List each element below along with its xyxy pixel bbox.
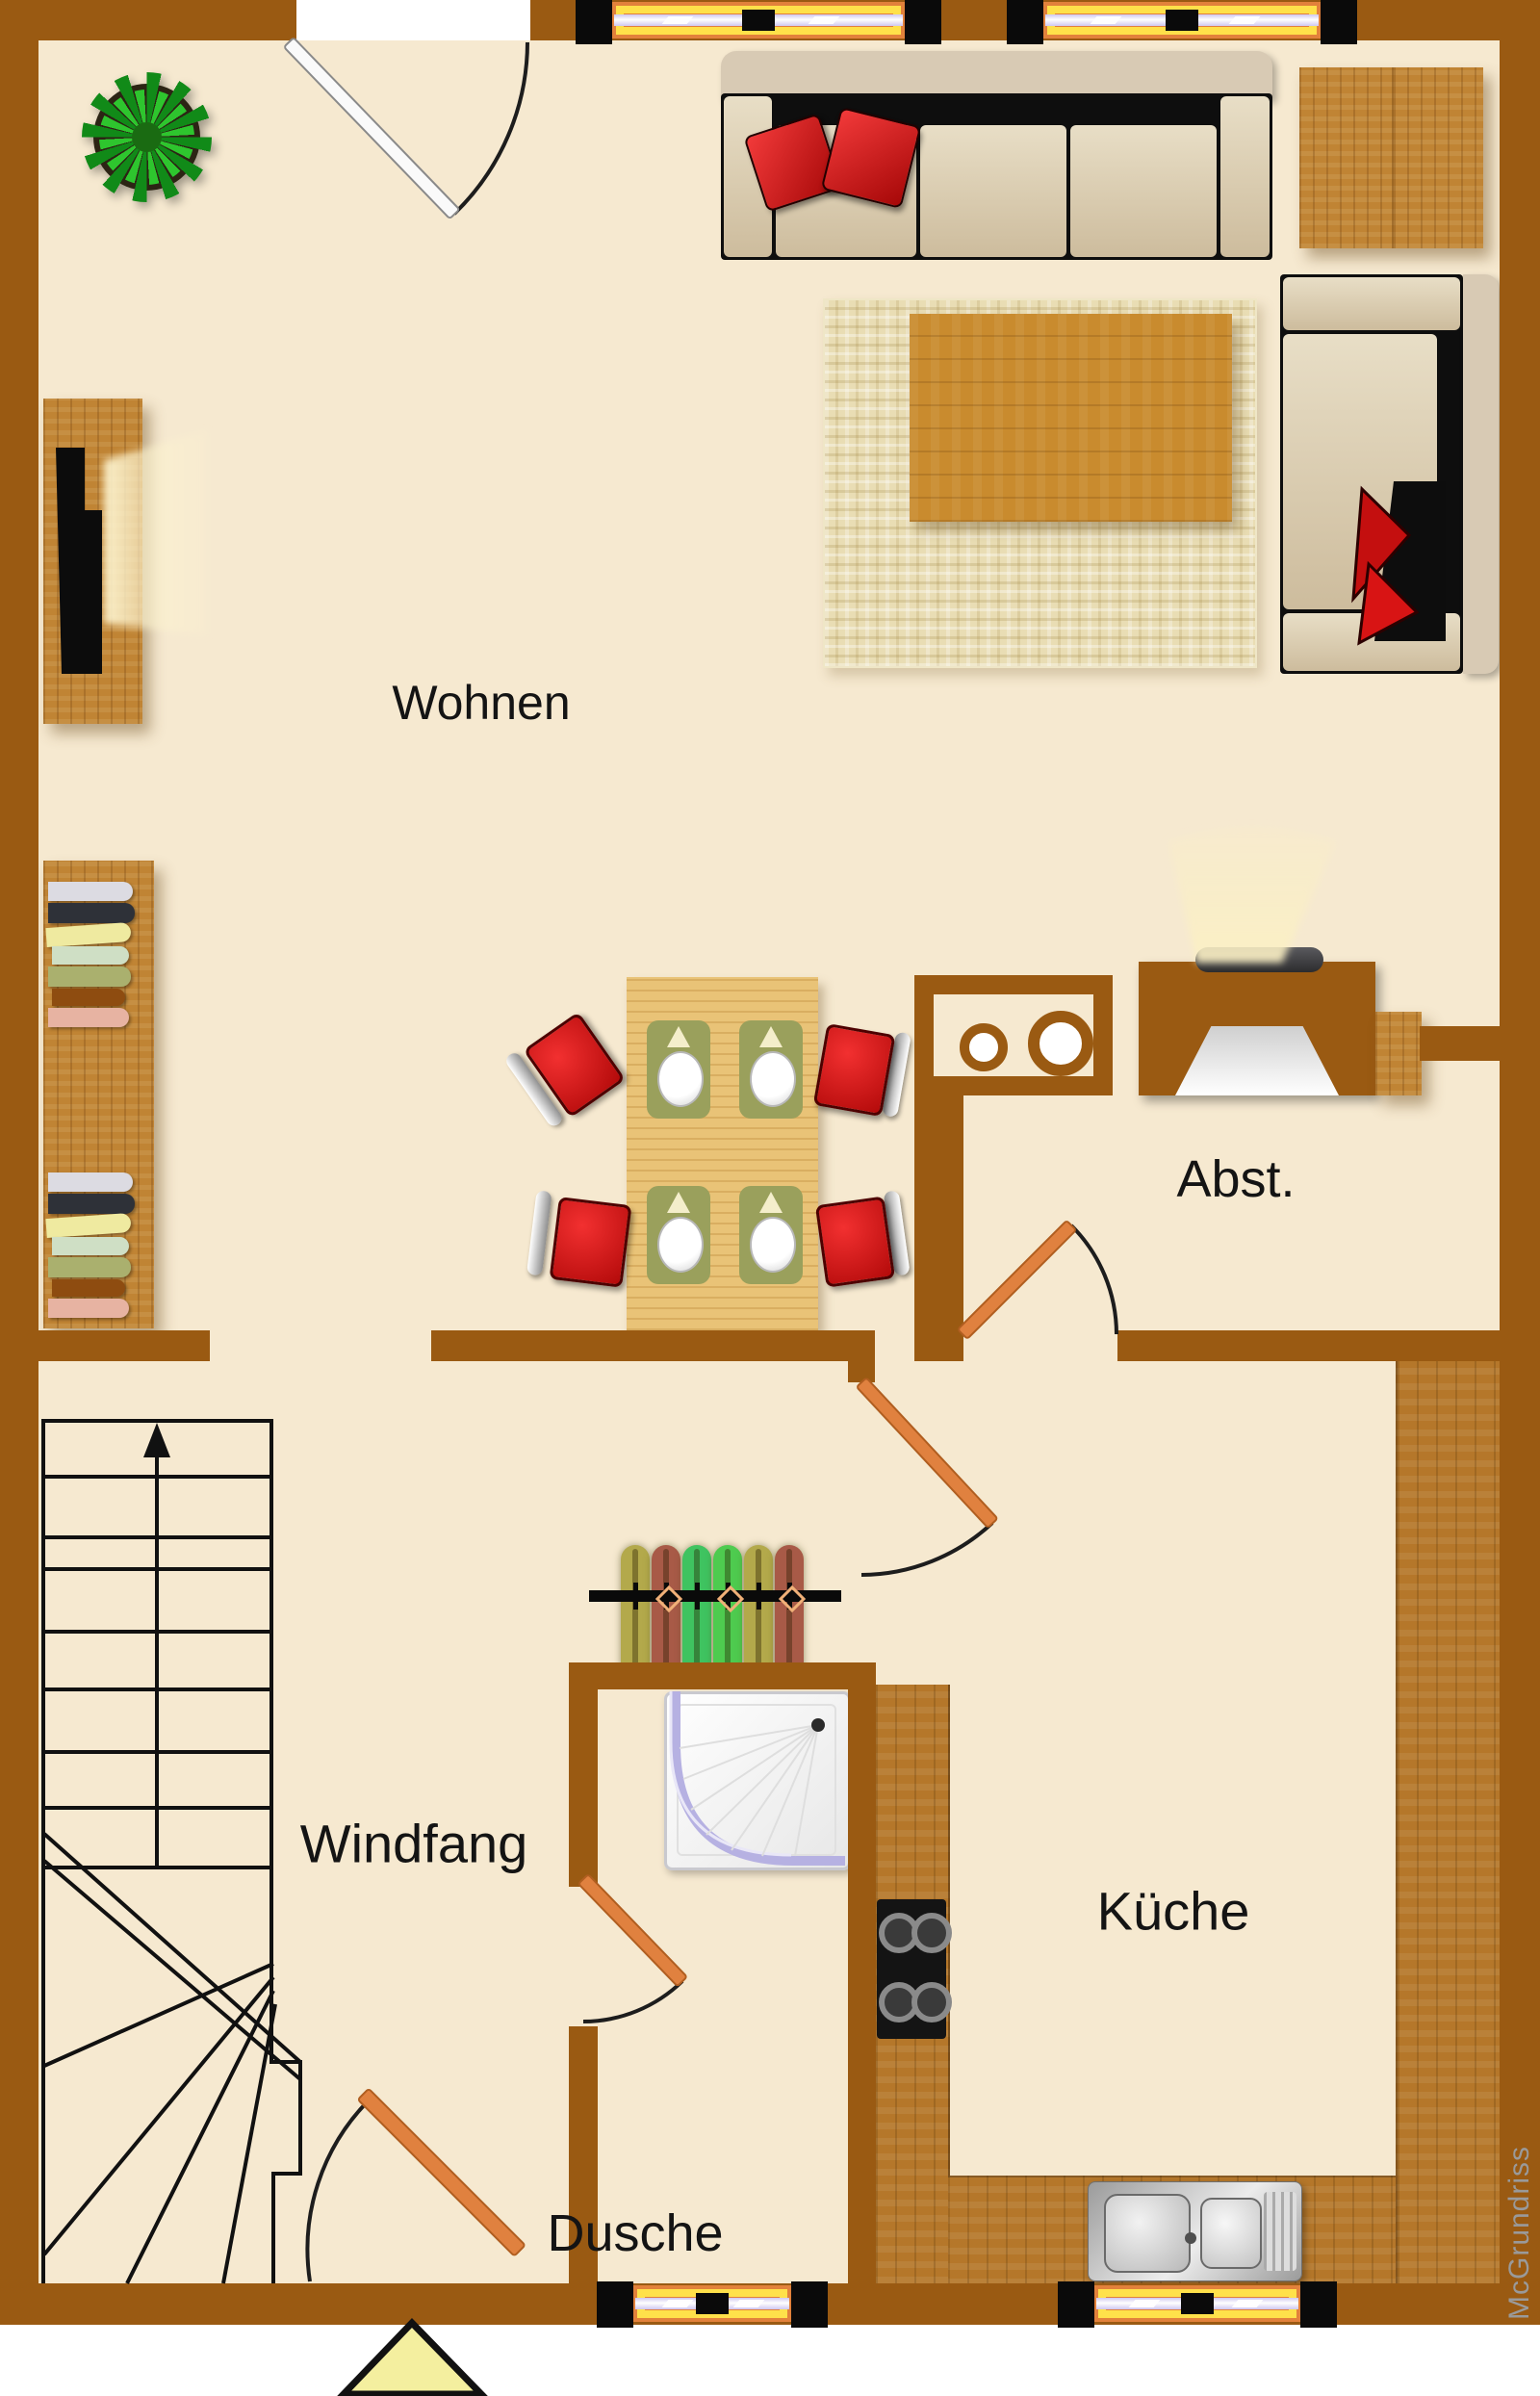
burner-ring-large	[1028, 1011, 1093, 1076]
book	[52, 989, 125, 1006]
wood-box	[1375, 1012, 1422, 1095]
window-cap	[597, 2281, 633, 2328]
window-symbol	[1043, 2, 1321, 39]
plant-icon	[82, 72, 212, 202]
fireplace	[1139, 962, 1375, 1095]
wall-dusche-top	[569, 1662, 855, 1689]
wall-stub-bookshelf	[0, 1330, 210, 1361]
sink-faucet	[1185, 2232, 1196, 2244]
book	[48, 1172, 133, 1192]
kitchen-sink	[1088, 2181, 1302, 2281]
wall-abst-bottom	[1117, 1330, 1500, 1361]
window-cap	[1058, 2281, 1094, 2328]
burner	[911, 1982, 952, 2022]
wall-dusche-left-upper	[569, 1662, 598, 1887]
storage-counter	[914, 975, 1113, 1095]
book	[48, 1194, 135, 1214]
coffee-table	[910, 314, 1232, 522]
wall-dining	[431, 1330, 875, 1361]
wall-stub-windfang-door	[848, 1359, 875, 1382]
door-opening-top	[296, 0, 530, 40]
cooktop	[877, 1899, 946, 2039]
burner	[911, 1913, 952, 1953]
wall-dusche-kitchen	[848, 1662, 876, 2283]
window-cap	[1321, 0, 1357, 44]
dining-chair	[810, 1184, 915, 1292]
sofa-cushion	[1283, 334, 1437, 609]
sofa-cushion	[920, 125, 1066, 257]
dining-chair	[808, 1011, 917, 1125]
fireplace-cap	[1195, 947, 1323, 972]
burner-ring-small	[960, 1023, 1008, 1071]
window-cap	[791, 2281, 828, 2328]
wall-nook	[1420, 1026, 1500, 1061]
book	[52, 946, 129, 965]
room-label-kueche: Küche	[1097, 1880, 1250, 1943]
kitchen-counter-right	[1396, 1359, 1501, 2283]
window-symbol	[1094, 2285, 1300, 2322]
book	[48, 1257, 131, 1277]
shower-tray	[664, 1691, 851, 1870]
book	[52, 1279, 125, 1297]
jacket	[775, 1545, 804, 1678]
tv-sideboard	[43, 399, 142, 724]
book	[48, 1299, 129, 1318]
room-label-wohnen: Wohnen	[392, 675, 570, 731]
window-symbol	[633, 2285, 791, 2322]
jacket	[682, 1545, 711, 1678]
book	[48, 1008, 129, 1027]
window-cap	[576, 0, 612, 44]
sink-drainboard	[1264, 2192, 1296, 2271]
window-symbol	[612, 2, 905, 39]
window-cap	[1007, 0, 1043, 44]
wall-right	[1500, 0, 1540, 2325]
coat-hook	[695, 1583, 700, 1610]
side-table	[1299, 67, 1483, 248]
coat-hook	[633, 1583, 638, 1610]
book	[48, 882, 133, 901]
book	[48, 903, 135, 923]
side-table-seam	[1392, 67, 1394, 248]
jacket	[744, 1545, 773, 1678]
sofa-back	[1463, 274, 1499, 674]
fireplace-opening	[1175, 1026, 1339, 1095]
place-setting	[647, 1186, 710, 1284]
sofa-armrest-bottom	[1283, 613, 1460, 671]
window-cap	[905, 0, 941, 44]
place-setting	[647, 1020, 710, 1119]
coat-hook	[757, 1583, 761, 1610]
place-setting	[739, 1186, 803, 1284]
jacket	[621, 1545, 650, 1678]
wall-left	[0, 0, 38, 2325]
sofa-right	[1280, 274, 1499, 674]
room-label-dusche: Dusche	[547, 2203, 723, 2263]
dining-chair	[526, 1184, 632, 1291]
floor-plan: Wohnen Abst. Windfang Küche Dusche McGru…	[0, 0, 1540, 2396]
sofa-cushion	[1070, 125, 1217, 257]
book	[48, 966, 131, 987]
jacket	[652, 1545, 680, 1678]
room-label-windfang: Windfang	[300, 1813, 528, 1875]
sink-basin	[1200, 2198, 1262, 2269]
watermark: McGrundriss	[1503, 2099, 1540, 2320]
wall-abst-left	[914, 1093, 963, 1361]
sofa-back	[721, 51, 1272, 99]
room-label-abst: Abst.	[1176, 1149, 1295, 1209]
sink-basin	[1104, 2194, 1191, 2273]
book	[52, 1237, 129, 1255]
jacket	[713, 1545, 742, 1678]
sofa-armrest-right	[1220, 96, 1270, 257]
entrance-marker	[344, 2323, 481, 2394]
sofa-armrest-top	[1283, 277, 1460, 330]
window-cap	[1300, 2281, 1337, 2328]
place-setting	[739, 1020, 803, 1119]
